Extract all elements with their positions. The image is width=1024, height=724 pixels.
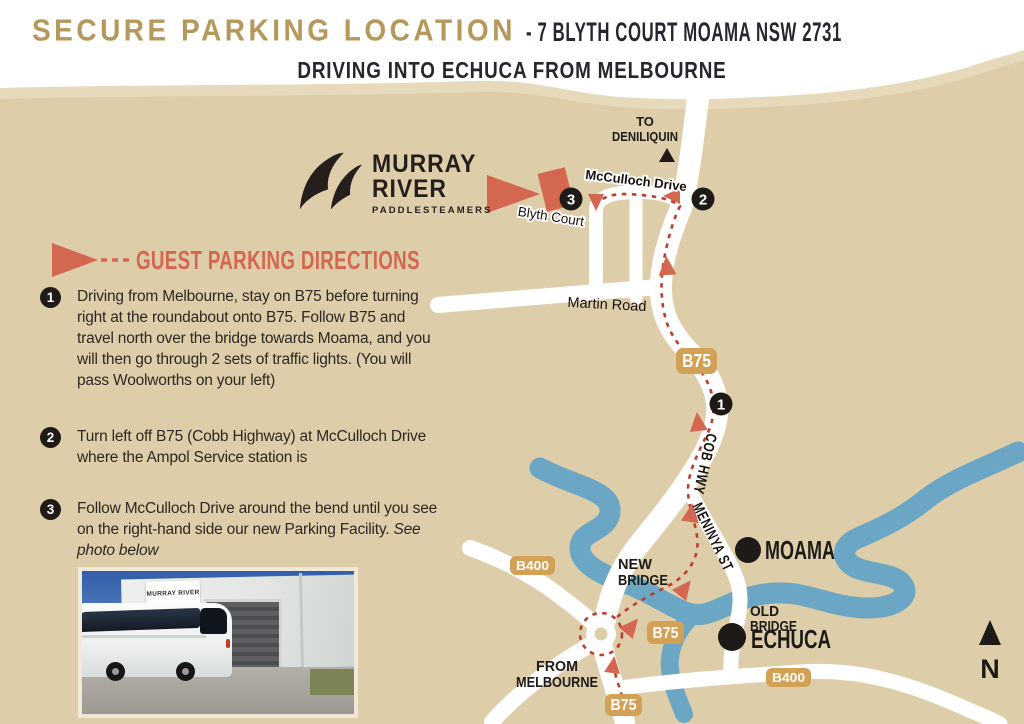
svg-text:3: 3: [567, 192, 575, 209]
direction-arrow-icon: [52, 240, 132, 280]
page-subtitle: DRIVING INTO ECHUCA FROM MELBOURNE: [92, 57, 932, 84]
photo-content: MURRAY RIVER: [82, 571, 354, 714]
page: TO DENILIQUIN McCulloch Drive Blyth Cour…: [0, 0, 1024, 724]
step-1-text: Driving from Melbourne, stay on B75 befo…: [77, 286, 440, 391]
guest-parking-heading: GUEST PARKING DIRECTIONS: [52, 240, 530, 280]
shield-b75-south: B75: [605, 694, 642, 716]
echuca-label: ECHUCA: [751, 624, 831, 654]
direction-step-2: 2 Turn left off B75 (Cobb Highway) at Mc…: [40, 426, 440, 468]
logo-text: MURRAY RIVER PADDLESTEAMERS: [372, 152, 493, 216]
shield-b400-west: B400: [510, 556, 555, 575]
bus-wheel: [106, 662, 125, 681]
bus-stripe: [82, 635, 206, 638]
step-3-text: Follow McCulloch Drive around the bend u…: [77, 498, 440, 561]
svg-text:BRIDGE: BRIDGE: [618, 573, 668, 589]
murray-river-logo: MURRAY RIVER PADDLESTEAMERS: [298, 152, 493, 216]
shield-b75-top: B75: [676, 348, 717, 374]
svg-text:FROM: FROM: [536, 659, 578, 675]
svg-text:N: N: [980, 654, 1000, 684]
echuca-dot: [718, 623, 746, 651]
map-marker-1: 1: [710, 393, 733, 416]
svg-text:B75: B75: [653, 625, 679, 642]
svg-text:NEW: NEW: [618, 557, 652, 573]
photo-grass: [310, 669, 354, 695]
parking-facility-photo: MURRAY RIVER: [78, 567, 358, 718]
bus-tail-light: [226, 639, 230, 648]
map-marker-3: 3: [560, 188, 583, 211]
photo-sign-text: MURRAY RIVER: [146, 589, 199, 598]
svg-text:B75: B75: [611, 697, 637, 714]
direction-step-1: 1 Driving from Melbourne, stay on B75 be…: [40, 286, 440, 391]
step-1-badge: 1: [40, 287, 61, 308]
svg-text:B75: B75: [682, 351, 711, 371]
svg-text:B400: B400: [772, 670, 805, 685]
guest-parking-heading-text: GUEST PARKING DIRECTIONS: [136, 245, 420, 276]
step-3-badge: 3: [40, 499, 61, 520]
svg-text:OLD: OLD: [750, 604, 779, 620]
svg-text:B400: B400: [516, 558, 549, 573]
bus-windows: [82, 608, 200, 632]
shield-b400-east: B400: [766, 668, 811, 687]
svg-text:DENILIQUIN: DENILIQUIN: [612, 129, 678, 144]
page-title-gold: SECURE PARKING LOCATION: [32, 13, 516, 48]
step-2-text: Turn left off B75 (Cobb Highway) at McCu…: [77, 426, 440, 468]
svg-text:MELBOURNE: MELBOURNE: [516, 675, 598, 691]
svg-text:TO: TO: [636, 114, 654, 129]
direction-step-3: 3 Follow McCulloch Drive around the bend…: [40, 498, 440, 561]
shield-b75-roundabout: B75: [647, 621, 684, 644]
moama-label: MOAMA: [765, 535, 835, 565]
logo-line2: RIVER: [372, 177, 483, 202]
bus-rear-window: [200, 608, 227, 634]
logo-line1: MURRAY: [372, 152, 483, 177]
page-title-address: - 7 BLYTH COURT MOAMA NSW 2731: [526, 17, 842, 48]
svg-text:2: 2: [699, 192, 707, 209]
logo-line3: PADDLESTEAMERS: [372, 206, 493, 216]
roundabout-island: [595, 628, 608, 641]
photo-bus: [82, 603, 232, 677]
logo-waves-icon: [298, 152, 362, 212]
map-marker-2: 2: [692, 188, 715, 211]
moama-dot: [735, 537, 761, 563]
page-title: SECURE PARKING LOCATION - 7 BLYTH COURT …: [32, 16, 1024, 48]
step-2-badge: 2: [40, 427, 61, 448]
bus-wheel: [176, 662, 195, 681]
svg-text:1: 1: [717, 397, 725, 414]
